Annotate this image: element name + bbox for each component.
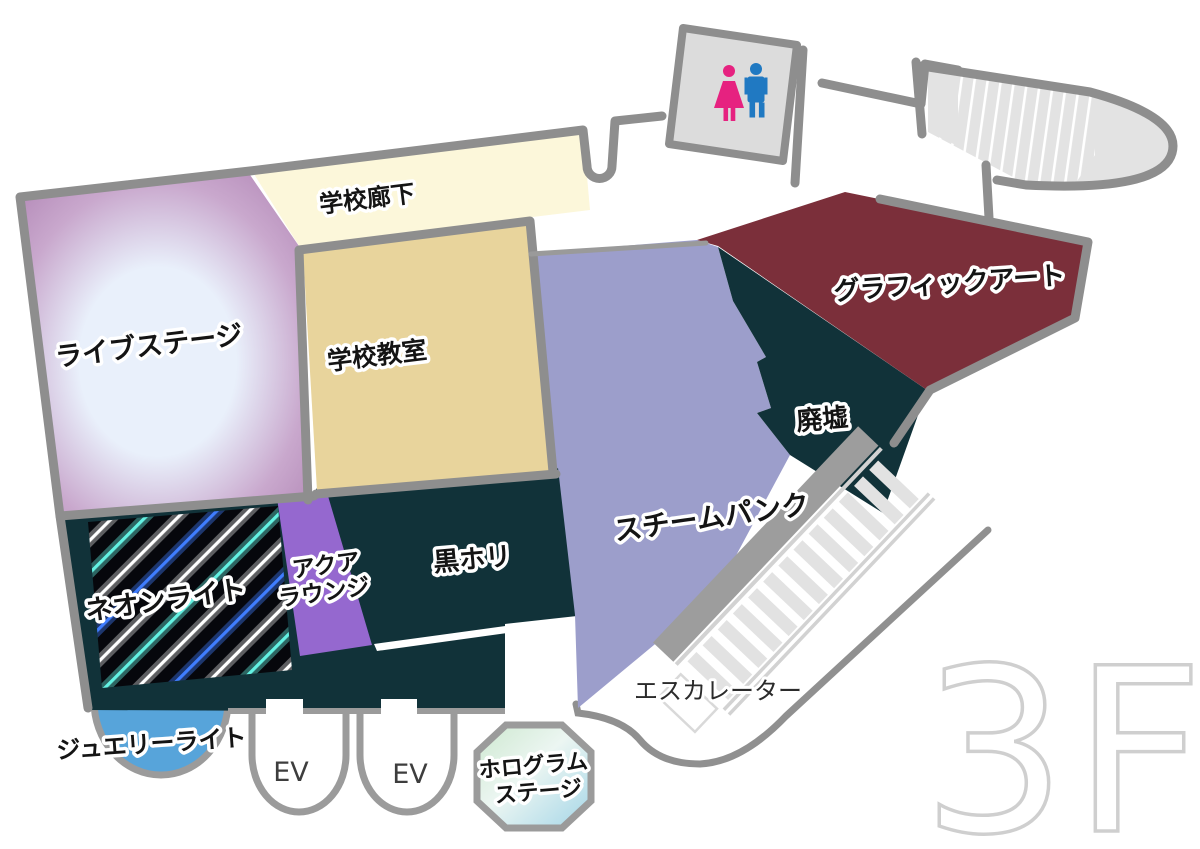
label-escalator: エスカレーター	[634, 677, 802, 705]
label-ruins: 廃墟	[795, 402, 850, 437]
elevator-1-door	[266, 699, 303, 714]
label-elevator-1: EV	[273, 757, 309, 788]
elevator-2-door	[381, 699, 417, 714]
label-elevator-2: EV	[392, 759, 428, 790]
restroom	[669, 28, 797, 161]
floor-map-page: 3F	[0, 0, 1200, 849]
floor-number-watermark: 3F	[922, 619, 1200, 849]
floor-map-3f: 3F	[0, 0, 1200, 849]
